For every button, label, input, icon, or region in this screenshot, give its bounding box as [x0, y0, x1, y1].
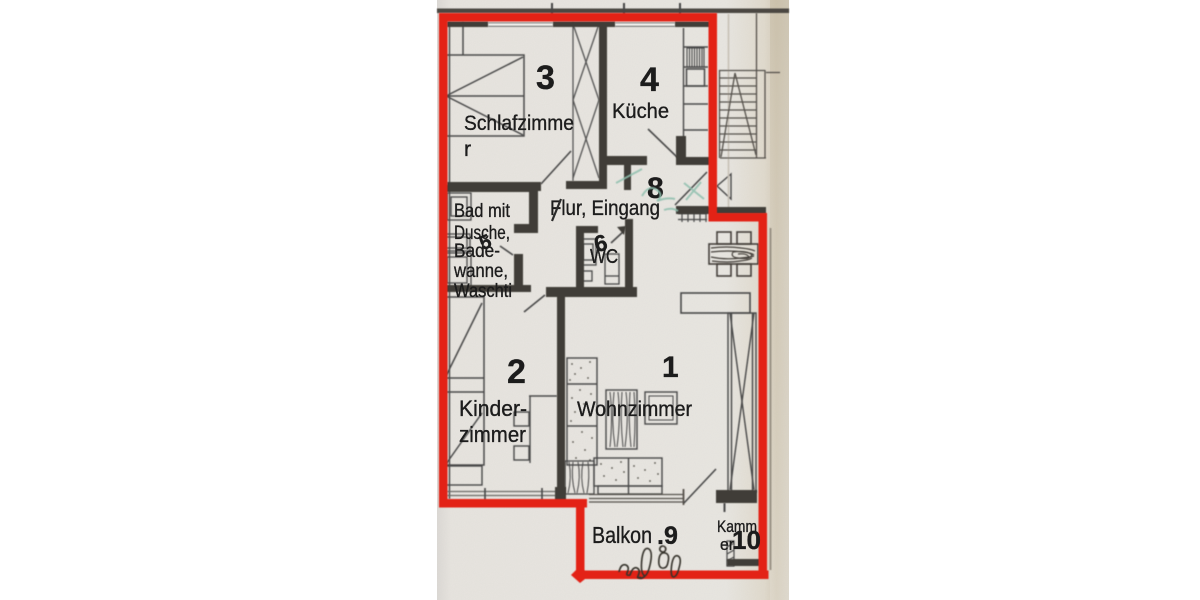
svg-text:zimmer: zimmer [459, 422, 526, 447]
svg-text:10: 10 [732, 525, 761, 555]
svg-text:Balkon: Balkon [592, 522, 652, 548]
svg-text:Bad mit: Bad mit [454, 200, 510, 222]
svg-text:r: r [464, 137, 471, 161]
svg-text:Kinder-: Kinder- [459, 396, 527, 421]
svg-text:Flur, Eingang: Flur, Eingang [550, 196, 660, 220]
svg-text:wanne,: wanne, [453, 260, 508, 282]
svg-text:Waschti: Waschti [454, 280, 512, 302]
svg-text:4: 4 [640, 61, 659, 99]
svg-text:3: 3 [536, 59, 555, 97]
svg-text:Schlafzimme: Schlafzimme [464, 111, 574, 135]
svg-text:2: 2 [507, 353, 526, 391]
svg-text:Küche: Küche [612, 99, 669, 123]
svg-text:.9: .9 [657, 522, 678, 550]
svg-text:1: 1 [662, 351, 679, 384]
svg-text:Wohnzimmer: Wohnzimmer [577, 397, 692, 421]
